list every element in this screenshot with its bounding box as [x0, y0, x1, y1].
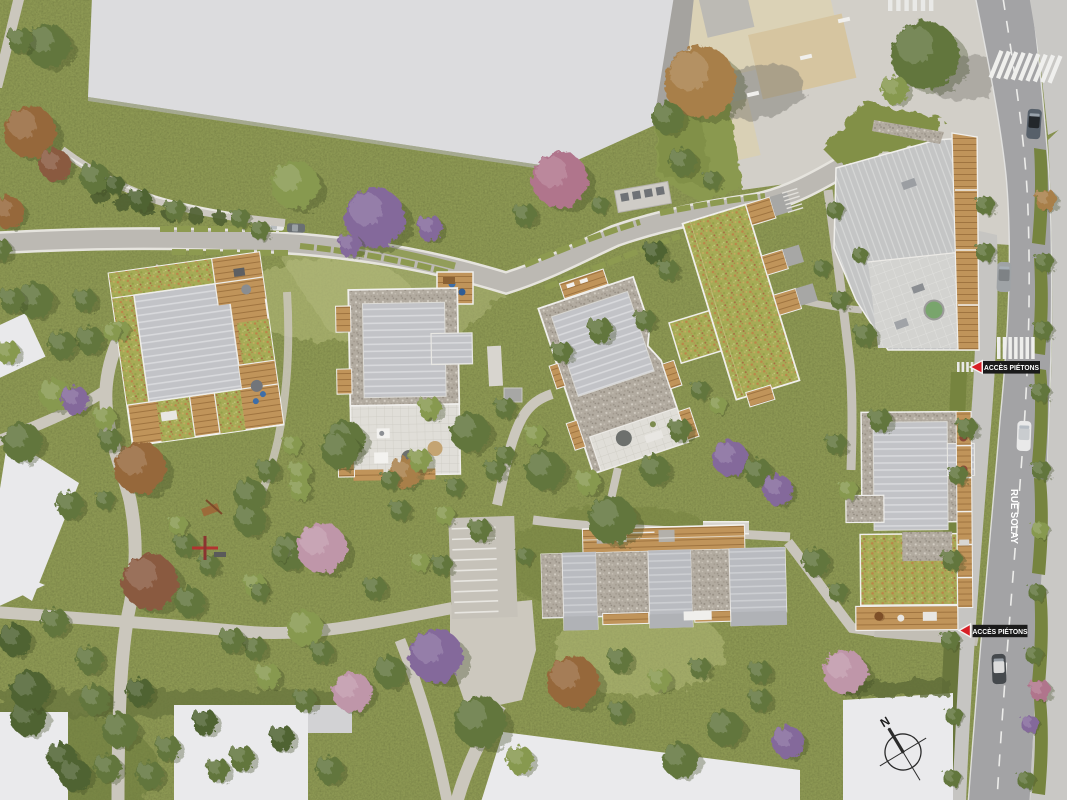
svg-text:ACCÈS PIÉTONS: ACCÈS PIÉTONS: [973, 627, 1028, 636]
svg-text:RUE SOLAY: RUE SOLAY: [1008, 489, 1020, 544]
svg-text:ACCÈS PIÉTONS: ACCÈS PIÉTONS: [984, 363, 1039, 372]
